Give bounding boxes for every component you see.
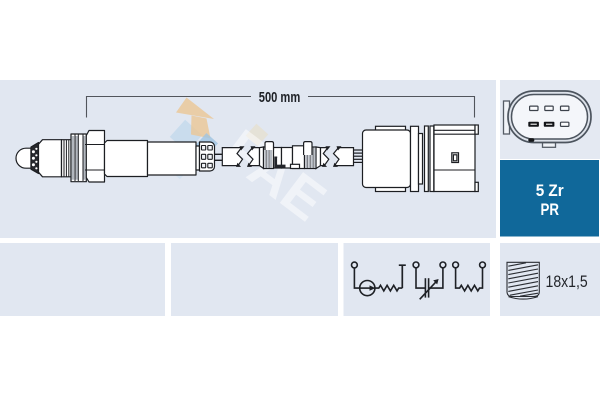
svg-text:18x1,5: 18x1,5 — [546, 273, 588, 291]
svg-text:PR: PR — [540, 200, 559, 219]
svg-text:500 mm: 500 mm — [259, 89, 301, 106]
svg-text:5 Zr: 5 Zr — [536, 181, 564, 200]
